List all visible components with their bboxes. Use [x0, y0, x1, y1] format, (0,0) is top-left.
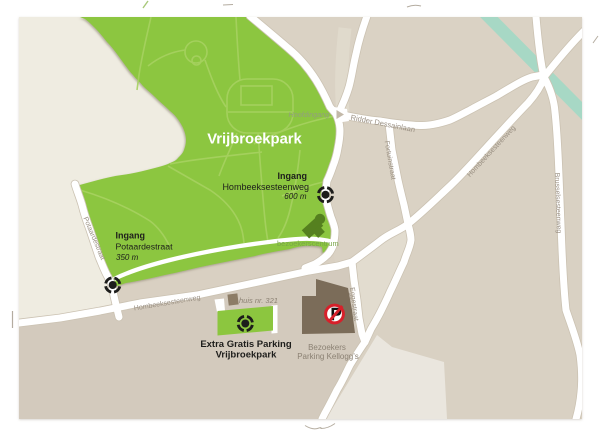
- svg-text:Ingang: Ingang: [278, 171, 308, 181]
- svg-text:Potaardestraat: Potaardestraat: [116, 242, 174, 252]
- svg-text:Ingang: Ingang: [116, 231, 146, 241]
- svg-text:350 m: 350 m: [116, 253, 139, 262]
- svg-text:bezoekerscentrum: bezoekerscentrum: [277, 239, 339, 248]
- svg-text:600 m: 600 m: [284, 192, 307, 201]
- svg-text:Bezoekers: Bezoekers: [308, 343, 346, 352]
- svg-text:Parking Kellogg's: Parking Kellogg's: [297, 352, 359, 361]
- svg-text:Vrijbroekpark: Vrijbroekpark: [207, 132, 302, 148]
- svg-text:huis nr. 321: huis nr. 321: [239, 296, 278, 305]
- svg-text:Hombeeksesteenweg: Hombeeksesteenweg: [222, 182, 309, 192]
- svg-text:Extra Gratis Parking: Extra Gratis Parking: [200, 339, 292, 350]
- svg-text:Vrijbroekpark: Vrijbroekpark: [216, 350, 277, 361]
- svg-text:Hoofdingang: Hoofdingang: [289, 110, 330, 119]
